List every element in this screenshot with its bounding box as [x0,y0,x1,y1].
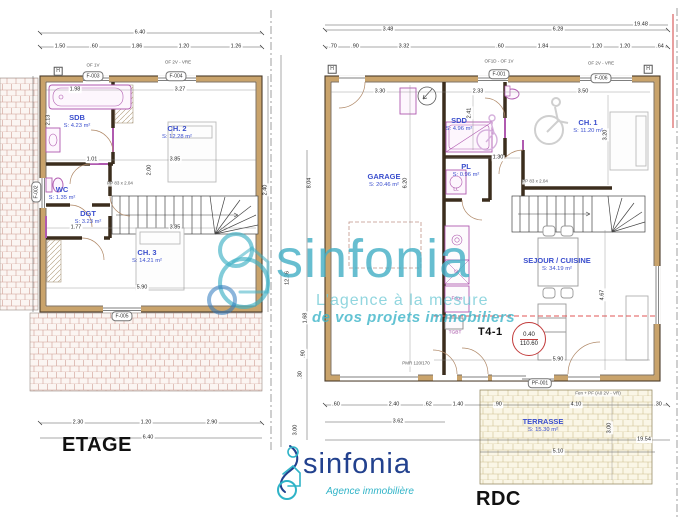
dim: 3.20 [603,129,609,142]
dim: 2.41 [467,107,473,120]
dim: 3.85 [169,225,182,231]
window-tag-f004: F-004 [165,71,186,81]
dim: 1.68 [303,312,309,325]
rdc-ch1-bed [610,112,648,170]
dim: .64 [655,44,665,50]
watermark-brand: sinfonia [276,232,470,286]
annotation-pp83-rdc: PP 83 x 2.04 [522,180,548,185]
dim: .30 [653,402,663,408]
dim: 5.10 [552,449,565,455]
dim: 1.20 [619,44,632,50]
dim: 4.10 [570,402,583,408]
annotation-fen-pf: Fen + PF (A0 2V - VR) [575,392,620,397]
room-label-garage: GARAGE S: 20.46 m² [368,172,401,189]
annotation-pp83: PP 83 x 2.04 [107,182,133,187]
room-label-wc: WC S: 1.35 m² [49,185,76,202]
dim: 5.90 [136,285,149,291]
dim: .70 [328,44,338,50]
dim: 3.00 [607,422,613,435]
dim: 6.40 [134,30,147,36]
dim: 1.01 [86,157,99,163]
window-tag-f002: F-002 [31,181,41,202]
dim: 1.86 [131,44,144,50]
dim: 6.40 [142,435,155,441]
badge-surface: 110.60 [520,340,538,347]
h-marker: H [644,65,653,74]
room-label-ch1: CH. 1 S: 11.20 m² [573,118,603,135]
dim: 8.04 [307,177,313,190]
dim: .62 [423,402,433,408]
dim: 2.90 [206,420,219,426]
etage-title: ETAGE [62,434,132,457]
dim: 1.26 [230,44,243,50]
window-tag-pf001: PF-001 [528,378,552,388]
label-tgbt: TGBT [449,331,462,336]
dim: .60 [89,44,99,50]
dim: 2.13 [46,114,52,127]
surface-badge: 0.40 110.60 [512,322,546,356]
rdc-stairs [512,196,645,232]
h-marker: H [54,67,63,76]
window-tag-f003: F-003 [82,71,103,81]
dim: .60 [495,44,505,50]
dim: 2.30 [72,420,85,426]
window-tag-f005: F-005 [111,311,132,321]
dim: 19.48 [633,22,649,28]
floorplan-sheet: ETAGE RDC T4-1 0.40 110.60 SDB S: 4.23 m… [0,0,681,525]
dim: 2.40 [263,184,269,197]
room-label-pl: PL S: 0.96 m² [453,162,480,179]
watermark-tagline-2: de vos projets immobiliers [312,309,515,326]
dim: 4.67 [600,289,606,302]
dim: 1.50 [54,44,67,50]
dim: 2.33 [472,89,485,95]
electric-meter-symbol [418,87,436,105]
dim: 2.00 [147,164,153,177]
dim: 6.28 [552,27,565,33]
dim: 3.50 [577,89,590,95]
dim: 3.85 [169,157,182,163]
dim: 1.20 [591,44,604,50]
label-ll: LL [453,188,458,193]
annotation-of2v-rdc: OF 2V - VRE [588,62,614,67]
dim: 3.00 [293,424,299,437]
room-label-terrasse: TERRASSE S: 15.30 m² [523,417,564,434]
dim: 3.48 [382,27,395,33]
dim: 1.84 [537,44,550,50]
dim: 2.40 [388,402,401,408]
annotation-pmr: PMR 120/170 [402,362,430,367]
dim: 19.54 [636,437,652,443]
annotation-of1d: OF1D - OF 1V [484,60,513,65]
dim: 1.20 [178,44,191,50]
dim: .30 [298,370,304,380]
room-label-sdb: SDB S: 4.23 m² [64,113,91,130]
rdc-title: RDC [476,488,521,511]
etage-stairs [112,196,258,234]
dim: 1.20 [140,420,153,426]
dim: 3.27 [174,87,187,93]
dim: 1.98 [69,87,82,93]
dim: 5.90 [552,357,565,363]
dim: 3.62 [392,419,405,425]
dim: .60 [331,402,341,408]
unit-label: T4-1 [478,326,503,338]
badge-coefficient: 0.40 [520,332,538,340]
annotation-of1v: OF 1V [86,64,99,69]
dim: 1.30 [492,155,505,161]
room-label-ch3: CH. 3 S: 14.21 m² [132,248,162,265]
rdc-terrace [480,390,652,484]
room-label-sejour: SEJOUR / CUISINE S: 34.19 m² [523,256,591,273]
dim: 3.32 [398,44,411,50]
dim: .90 [301,349,307,359]
dim: .90 [493,402,503,408]
dim: 1.77 [70,225,83,231]
window-tag-f006: F-006 [590,73,611,83]
annotation-of2v: OF 2V - VRE [165,61,191,66]
dim: .90 [350,44,360,50]
logo-brand: sinfonia [303,450,411,479]
dim: 3.30 [374,89,387,95]
sinfonia-logo-mark [278,446,300,499]
watermark-tagline-1: L'agence à la mesure [316,292,488,310]
h-marker: H [328,65,337,74]
room-label-ch2: CH. 2 S: 12.28 m² [162,124,192,141]
logo-subtitle: Agence immobilière [326,486,414,497]
window-tag-f001: F-001 [488,69,509,79]
dim: 6.20 [403,177,409,190]
dim: 1.40 [452,402,465,408]
